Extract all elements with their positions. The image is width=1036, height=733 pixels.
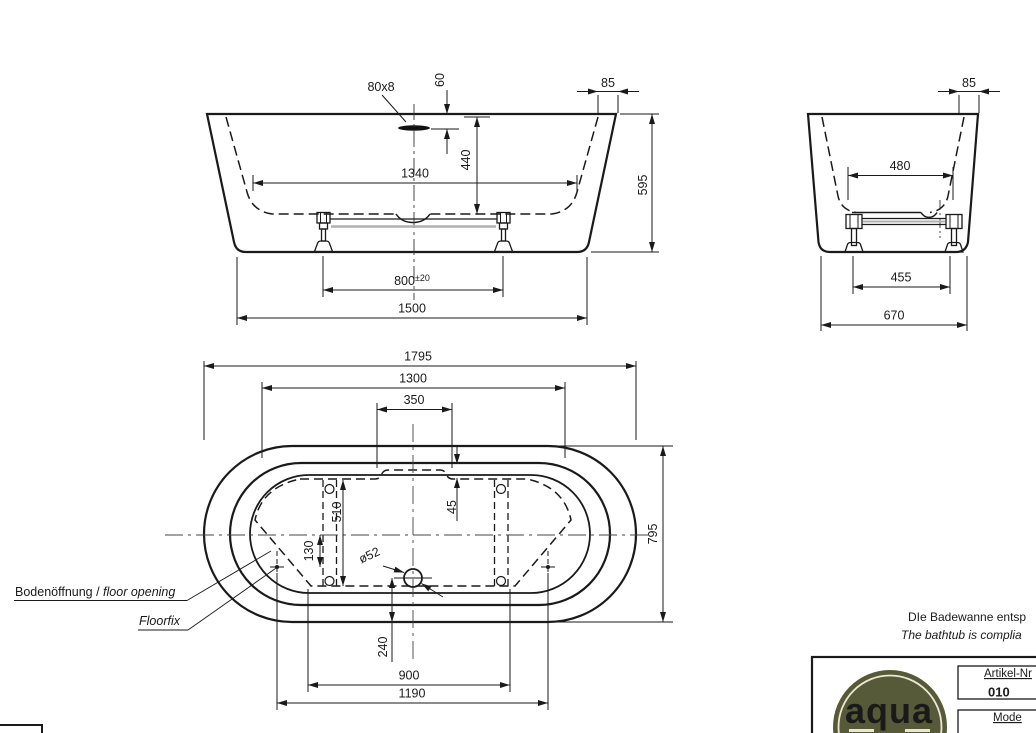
- dim-floorfix-offset: 130: [302, 541, 316, 562]
- tub-outer-rim: [204, 446, 636, 622]
- end-view: 480 85 455 670: [808, 76, 1000, 331]
- dim-inner-length: 1340: [401, 167, 429, 181]
- dim-frame-width: 900: [399, 669, 420, 683]
- brand-logo: aqua: [833, 670, 947, 733]
- dim-inner-width: 480: [890, 159, 911, 173]
- dim-overall-length-side: 1500: [398, 302, 426, 316]
- dim-recess-offset: 45: [445, 500, 459, 514]
- side-dimensions: 80x8 60 440 1340 85 595 80: [237, 73, 659, 325]
- dim-overall-length-plan: 1795: [404, 350, 432, 364]
- tub-end-inner-dashed-right: [930, 117, 964, 213]
- compliance-note: DIe Badewanne entsp The bathtub is compl…: [901, 610, 1026, 642]
- dim-overall-width-end: 670: [884, 309, 905, 323]
- dim-overall-width-plan: 795: [646, 524, 660, 545]
- rail-screw: [497, 485, 506, 494]
- dim-depth: 440: [459, 150, 473, 171]
- adjustable-foot: [315, 213, 333, 252]
- dim-height: 595: [636, 175, 650, 196]
- dim-rim-width-side: 85: [601, 76, 615, 90]
- dim-rim-width-end: 85: [962, 76, 976, 90]
- dim-overflow-drop: 60: [433, 73, 447, 87]
- stamp-box-corner: [0, 725, 42, 733]
- article-value: 010: [988, 685, 1010, 700]
- adjustable-foot: [495, 213, 513, 252]
- title-block: aqua Artikel-Nr 010 Mode: [812, 657, 1036, 733]
- dim-feet-spacing-end: 455: [891, 271, 912, 285]
- rail-screw: [325, 577, 334, 586]
- tub-end-inner-dashed-left: [822, 117, 856, 213]
- technical-drawing-sheet: 80x8 60 440 1340 85 595 80: [0, 0, 1036, 733]
- dim-drain-diameter: ø52: [357, 544, 382, 566]
- model-label: Mode: [993, 712, 1022, 724]
- dim-rail-length: 510: [330, 502, 344, 523]
- drain-recess-end: [921, 213, 937, 218]
- rail-screw: [325, 485, 334, 494]
- tub-side-inner-dashed-right: [430, 117, 598, 214]
- plan-view: ø52 1795 1300 350 795 45 510: [14, 350, 673, 711]
- side-view: 80x8 60 440 1340 85 595 80: [207, 73, 659, 325]
- article-label: Artikel-Nr: [984, 668, 1032, 680]
- floor-opening-label: Bodenöffnung / floor opening: [15, 585, 175, 599]
- dim-floorfix-spacing: 1190: [399, 687, 426, 701]
- dim-recess-width: 350: [404, 393, 425, 407]
- drain-recess-side: [396, 214, 430, 223]
- dim-overflow-size: 80x8: [367, 80, 394, 94]
- floorfix-label: Floorfix: [139, 614, 181, 628]
- dim-drain-offset: 240: [376, 637, 390, 658]
- rail-screw: [497, 577, 506, 586]
- dim-feet-spacing: 800±20: [394, 273, 430, 288]
- note-english: The bathtub is complia: [901, 628, 1022, 642]
- adjustable-foot: [945, 215, 963, 253]
- tub-side-inner-dashed: [226, 117, 396, 214]
- bathtub-drawing: 80x8 60 440 1340 85 595 80: [0, 0, 1036, 733]
- adjustable-foot: [845, 215, 863, 253]
- dim-basin-length: 1300: [399, 372, 427, 386]
- overflow-leader: [382, 95, 406, 122]
- note-german: DIe Badewanne entsp: [908, 610, 1026, 624]
- brand-name: aqua: [845, 690, 933, 731]
- plan-dimensions: 1795 1300 350 795 45 510 130 240: [204, 350, 673, 711]
